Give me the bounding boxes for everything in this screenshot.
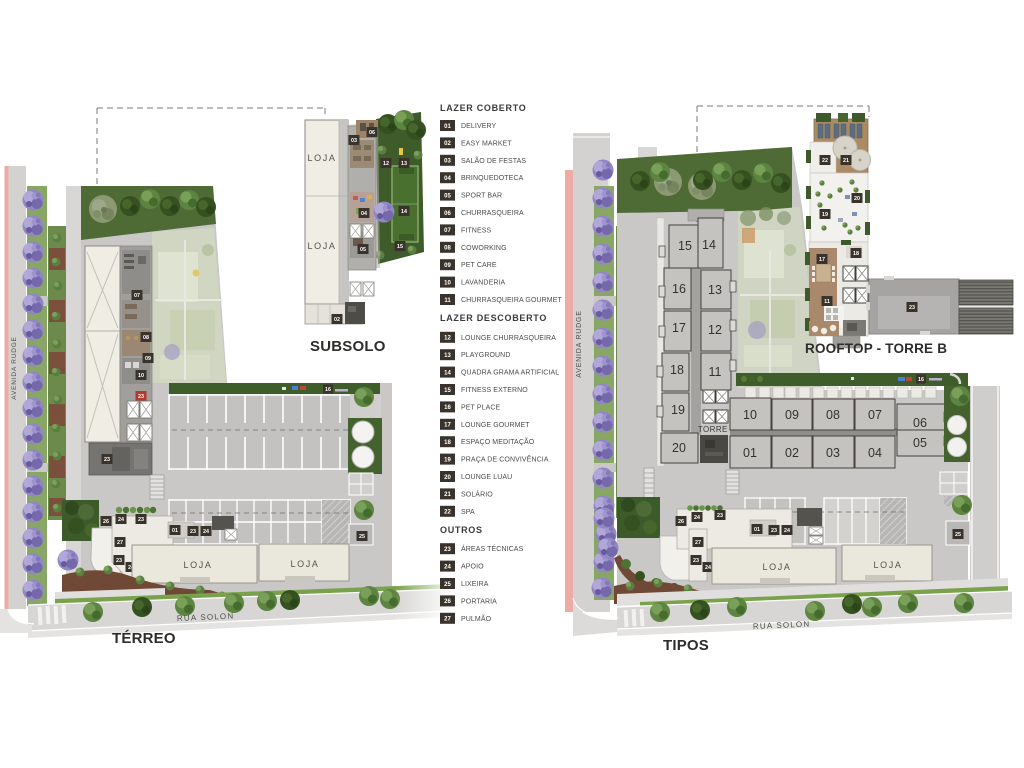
svg-text:09: 09: [444, 263, 451, 269]
svg-text:12: 12: [708, 323, 722, 337]
svg-text:07: 07: [444, 228, 451, 234]
svg-text:23: 23: [138, 517, 144, 523]
svg-text:23: 23: [909, 305, 915, 311]
svg-text:PLAYGROUND: PLAYGROUND: [461, 352, 511, 359]
svg-text:05: 05: [360, 247, 366, 253]
svg-text:SUBSOLO: SUBSOLO: [310, 338, 386, 355]
svg-text:AVENIDA RUDGE: AVENIDA RUDGE: [11, 336, 18, 399]
svg-text:APOIO: APOIO: [461, 564, 484, 571]
svg-text:11: 11: [709, 365, 722, 379]
svg-text:LOJA: LOJA: [291, 559, 320, 569]
svg-text:13: 13: [444, 353, 451, 359]
svg-text:16: 16: [444, 405, 451, 411]
svg-text:26: 26: [678, 519, 684, 525]
svg-text:LOJA: LOJA: [763, 562, 792, 572]
svg-text:06: 06: [369, 130, 375, 136]
svg-text:SPA: SPA: [461, 509, 475, 516]
svg-text:16: 16: [918, 377, 924, 383]
svg-text:06: 06: [444, 211, 451, 217]
svg-text:PET PLACE: PET PLACE: [461, 404, 501, 411]
svg-text:16: 16: [672, 282, 686, 296]
svg-text:04: 04: [361, 211, 367, 217]
svg-text:02: 02: [444, 141, 451, 147]
svg-text:24: 24: [118, 517, 124, 523]
svg-text:11: 11: [824, 299, 830, 305]
svg-text:22: 22: [822, 158, 828, 164]
svg-text:FITNESS EXTERNO: FITNESS EXTERNO: [461, 387, 528, 394]
svg-text:02: 02: [785, 446, 799, 460]
svg-text:LOUNGE CHURRASQUEIRA: LOUNGE CHURRASQUEIRA: [461, 335, 556, 342]
svg-text:05: 05: [444, 193, 451, 199]
svg-text:23: 23: [717, 513, 723, 519]
svg-text:14: 14: [702, 238, 716, 252]
svg-text:10: 10: [743, 408, 757, 422]
svg-text:09: 09: [145, 356, 151, 362]
svg-text:SOLÁRIO: SOLÁRIO: [461, 489, 493, 498]
svg-text:07: 07: [134, 293, 140, 299]
svg-text:BRINQUEDOTECA: BRINQUEDOTECA: [461, 175, 524, 182]
svg-text:LOJA: LOJA: [874, 560, 903, 570]
svg-text:23: 23: [104, 457, 110, 463]
svg-text:17: 17: [819, 257, 825, 263]
svg-text:13: 13: [708, 283, 722, 297]
svg-text:27: 27: [444, 617, 451, 623]
svg-text:08: 08: [143, 335, 149, 341]
svg-text:AVENIDA RUDGE: AVENIDA RUDGE: [576, 310, 583, 377]
svg-text:TÉRREO: TÉRREO: [112, 630, 176, 647]
svg-text:03: 03: [351, 138, 357, 144]
svg-text:10: 10: [138, 373, 144, 379]
svg-text:18: 18: [853, 251, 859, 257]
svg-text:18: 18: [670, 363, 684, 377]
svg-text:08: 08: [444, 246, 451, 252]
svg-text:ESPAÇO MEDITAÇÃO: ESPAÇO MEDITAÇÃO: [461, 437, 535, 446]
svg-text:25: 25: [444, 582, 451, 588]
svg-text:04: 04: [868, 446, 882, 460]
svg-text:09: 09: [785, 408, 799, 422]
svg-text:14: 14: [401, 209, 407, 215]
svg-text:23: 23: [116, 558, 122, 564]
svg-text:LOJA: LOJA: [308, 241, 337, 251]
svg-text:12: 12: [444, 336, 451, 342]
svg-text:13: 13: [401, 161, 407, 167]
svg-text:18: 18: [444, 440, 451, 446]
svg-text:24: 24: [203, 529, 209, 535]
svg-text:07: 07: [868, 408, 882, 422]
svg-text:24: 24: [705, 565, 711, 571]
svg-text:17: 17: [444, 423, 451, 429]
svg-text:LIXEIRA: LIXEIRA: [461, 581, 489, 588]
svg-text:26: 26: [103, 519, 109, 525]
svg-text:23: 23: [693, 558, 699, 564]
svg-text:20: 20: [854, 196, 860, 202]
svg-text:23: 23: [444, 547, 451, 553]
svg-text:24: 24: [694, 515, 700, 521]
svg-text:OUTROS: OUTROS: [440, 525, 483, 535]
svg-text:QUADRA GRAMA ARTIFICIAL: QUADRA GRAMA ARTIFICIAL: [461, 370, 559, 377]
svg-text:08: 08: [826, 408, 840, 422]
svg-text:10: 10: [444, 280, 451, 286]
svg-text:05: 05: [913, 436, 927, 450]
svg-text:21: 21: [444, 492, 451, 498]
svg-text:01: 01: [172, 528, 178, 534]
svg-text:20: 20: [672, 441, 686, 455]
svg-text:LAVANDERIA: LAVANDERIA: [461, 280, 506, 287]
svg-text:26: 26: [444, 599, 451, 605]
svg-text:12: 12: [383, 161, 389, 167]
svg-text:19: 19: [671, 403, 685, 417]
svg-text:PRAÇA DE CONVIVÊNCIA: PRAÇA DE CONVIVÊNCIA: [461, 455, 549, 464]
svg-text:20: 20: [444, 475, 451, 481]
svg-text:LOJA: LOJA: [308, 153, 337, 163]
svg-text:27: 27: [117, 540, 123, 546]
svg-text:23: 23: [138, 394, 144, 400]
svg-text:LAZER DESCOBERTO: LAZER DESCOBERTO: [440, 313, 547, 323]
svg-text:03: 03: [826, 446, 840, 460]
svg-text:DELIVERY: DELIVERY: [461, 123, 497, 130]
svg-text:17: 17: [672, 321, 686, 335]
svg-text:15: 15: [444, 388, 451, 394]
svg-text:PULMÃO: PULMÃO: [461, 614, 492, 623]
svg-text:23: 23: [190, 529, 196, 535]
svg-text:COWORKING: COWORKING: [461, 245, 507, 252]
svg-text:ROOFTOP - TORRE B: ROOFTOP - TORRE B: [805, 341, 947, 356]
svg-text:01: 01: [743, 446, 757, 460]
svg-text:24: 24: [444, 564, 451, 570]
svg-text:14: 14: [444, 370, 451, 376]
svg-text:25: 25: [955, 532, 961, 538]
svg-text:SPORT BAR: SPORT BAR: [461, 193, 502, 200]
svg-text:16: 16: [325, 387, 331, 393]
svg-text:27: 27: [695, 540, 701, 546]
svg-text:01: 01: [754, 527, 760, 533]
svg-text:TIPOS: TIPOS: [663, 637, 709, 654]
svg-text:PET CARE: PET CARE: [461, 262, 497, 269]
svg-text:15: 15: [678, 239, 692, 253]
svg-text:02: 02: [334, 317, 340, 323]
svg-text:SALÃO DE FESTAS: SALÃO DE FESTAS: [461, 156, 526, 165]
svg-text:22: 22: [444, 510, 451, 516]
svg-text:24: 24: [784, 528, 790, 534]
svg-text:LOUNGE LUAU: LOUNGE LUAU: [461, 474, 512, 481]
svg-text:LOJA: LOJA: [184, 560, 213, 570]
svg-text:19: 19: [444, 457, 451, 463]
svg-text:01: 01: [444, 124, 451, 130]
svg-text:21: 21: [843, 158, 849, 164]
svg-text:15: 15: [397, 244, 403, 250]
svg-text:CHURRASQUEIRA: CHURRASQUEIRA: [461, 210, 524, 217]
svg-text:FITNESS: FITNESS: [461, 227, 491, 234]
svg-text:23: 23: [771, 528, 777, 534]
svg-text:06: 06: [913, 416, 927, 430]
svg-text:11: 11: [444, 298, 451, 304]
svg-text:PORTARIA: PORTARIA: [461, 598, 497, 605]
svg-text:04: 04: [444, 176, 451, 182]
svg-text:25: 25: [359, 534, 365, 540]
svg-text:19: 19: [822, 212, 828, 218]
svg-text:CHURRASQUEIRA GOURMET: CHURRASQUEIRA GOURMET: [461, 297, 563, 304]
svg-text:ÁREAS TÉCNICAS: ÁREAS TÉCNICAS: [461, 544, 524, 553]
svg-text:LAZER COBERTO: LAZER COBERTO: [440, 103, 526, 113]
svg-text:LOUNGE GOURMET: LOUNGE GOURMET: [461, 422, 530, 429]
svg-text:03: 03: [444, 159, 451, 165]
svg-text:EASY MARKET: EASY MARKET: [461, 140, 512, 147]
